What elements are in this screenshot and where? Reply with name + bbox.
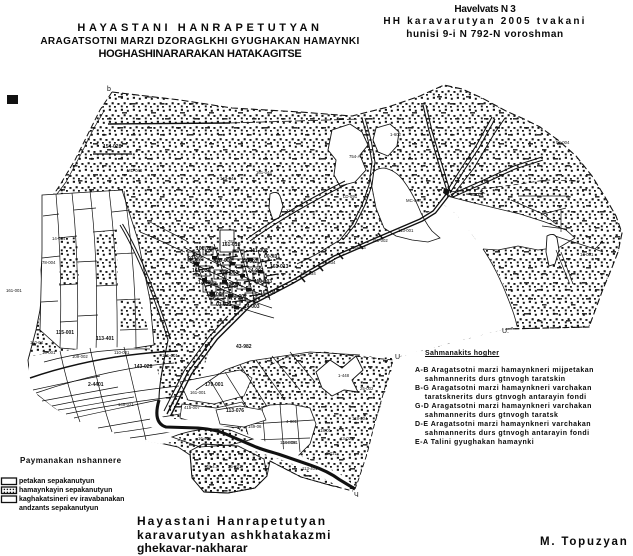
svg-text:b: b [107, 86, 111, 93]
svg-text:110-001: 110-001 [114, 350, 130, 355]
svg-text:48-4.7: 48-4.7 [206, 464, 219, 469]
svg-text:149-021: 149-021 [118, 402, 134, 407]
svg-text:131-024: 131-024 [350, 245, 366, 250]
svg-text:179-001: 179-001 [205, 382, 224, 388]
svg-text:107-001: 107-001 [220, 270, 239, 276]
svg-text:161-025: 161-025 [192, 268, 211, 274]
svg-text:144-008: 144-008 [280, 440, 296, 445]
svg-text:U.: U. [502, 328, 509, 335]
svg-text:64-002: 64-002 [242, 259, 258, 265]
svg-text:14-003: 14-003 [244, 304, 260, 310]
svg-text:160-001: 160-001 [214, 258, 233, 264]
svg-text:14-034: 14-034 [322, 260, 336, 265]
svg-text:154-028: 154-028 [103, 144, 122, 150]
svg-text:78-004: 78-004 [42, 260, 56, 265]
svg-text:115-001: 115-001 [56, 330, 74, 336]
svg-text:143-044: 143-044 [220, 176, 236, 181]
svg-text:113-076: 113-076 [226, 408, 244, 414]
svg-text:24-002: 24-002 [248, 268, 264, 274]
svg-text:25-002: 25-002 [360, 386, 374, 391]
svg-text:14-001: 14-001 [580, 252, 594, 257]
svg-text:113-401: 113-401 [96, 336, 114, 342]
svg-text:161-001: 161-001 [6, 288, 22, 293]
svg-text:14-034: 14-034 [52, 236, 66, 241]
svg-text:143-028: 143-028 [134, 364, 153, 370]
svg-text:109-002: 109-002 [72, 354, 88, 359]
svg-text:110-04: 110-04 [30, 340, 44, 345]
svg-text:16-021: 16-021 [198, 436, 212, 441]
svg-text:161-034: 161-034 [300, 271, 316, 276]
svg-text:MD-046: MD-046 [127, 168, 143, 173]
svg-text:754-A: 754-A [349, 154, 361, 159]
svg-text:161-044: 161-044 [256, 170, 272, 175]
svg-text:161-002: 161-002 [372, 238, 388, 243]
svg-text:Ч: Ч [354, 492, 359, 499]
svg-text:43-982: 43-982 [236, 344, 252, 350]
svg-text:161-001: 161-001 [190, 390, 206, 395]
svg-text:113-401: 113-401 [302, 466, 318, 471]
svg-text:161-04: 161-04 [260, 290, 276, 296]
svg-text:00-X01: 00-X01 [264, 254, 280, 260]
svg-text:118-01: 118-01 [318, 428, 332, 433]
svg-text:118-004: 118-004 [352, 416, 368, 421]
svg-text:101-78: 101-78 [196, 246, 212, 252]
svg-text:101-004: 101-004 [206, 292, 225, 298]
svg-text:4-6001: 4-6001 [470, 192, 484, 197]
svg-text:4-001: 4-001 [286, 419, 298, 424]
svg-text:13-001: 13-001 [42, 350, 56, 355]
svg-text:25-021: 25-021 [228, 464, 242, 469]
svg-text:4-002: 4-002 [234, 294, 247, 300]
svg-text:1-78: 1-78 [224, 239, 233, 244]
svg-text:1-602: 1-602 [390, 132, 402, 137]
svg-text:113-001: 113-001 [398, 228, 414, 233]
svg-text:161-013: 161-013 [270, 264, 289, 270]
svg-text:149-06: 149-06 [248, 424, 262, 429]
svg-text:13-001: 13-001 [226, 282, 242, 288]
svg-text:50-004: 50-004 [556, 140, 570, 145]
svg-text:LD-091: LD-091 [343, 194, 358, 199]
svg-text:0-021: 0-021 [326, 451, 338, 456]
svg-text:U: U [395, 354, 400, 361]
svg-text:1-448: 1-448 [338, 373, 350, 378]
svg-text:1-0783: 1-0783 [198, 280, 214, 286]
svg-text:MC-047: MC-047 [406, 198, 422, 203]
svg-text:2-4401: 2-4401 [88, 382, 104, 388]
svg-text:XL-A: XL-A [286, 208, 296, 213]
svg-text:191-001: 191-001 [162, 353, 178, 358]
svg-text:03-005: 03-005 [188, 256, 204, 262]
svg-text:13-021: 13-021 [340, 436, 354, 441]
svg-text:03-021: 03-021 [216, 302, 232, 308]
svg-text:415-007: 415-007 [184, 405, 200, 410]
svg-text:110-003: 110-003 [254, 279, 272, 285]
